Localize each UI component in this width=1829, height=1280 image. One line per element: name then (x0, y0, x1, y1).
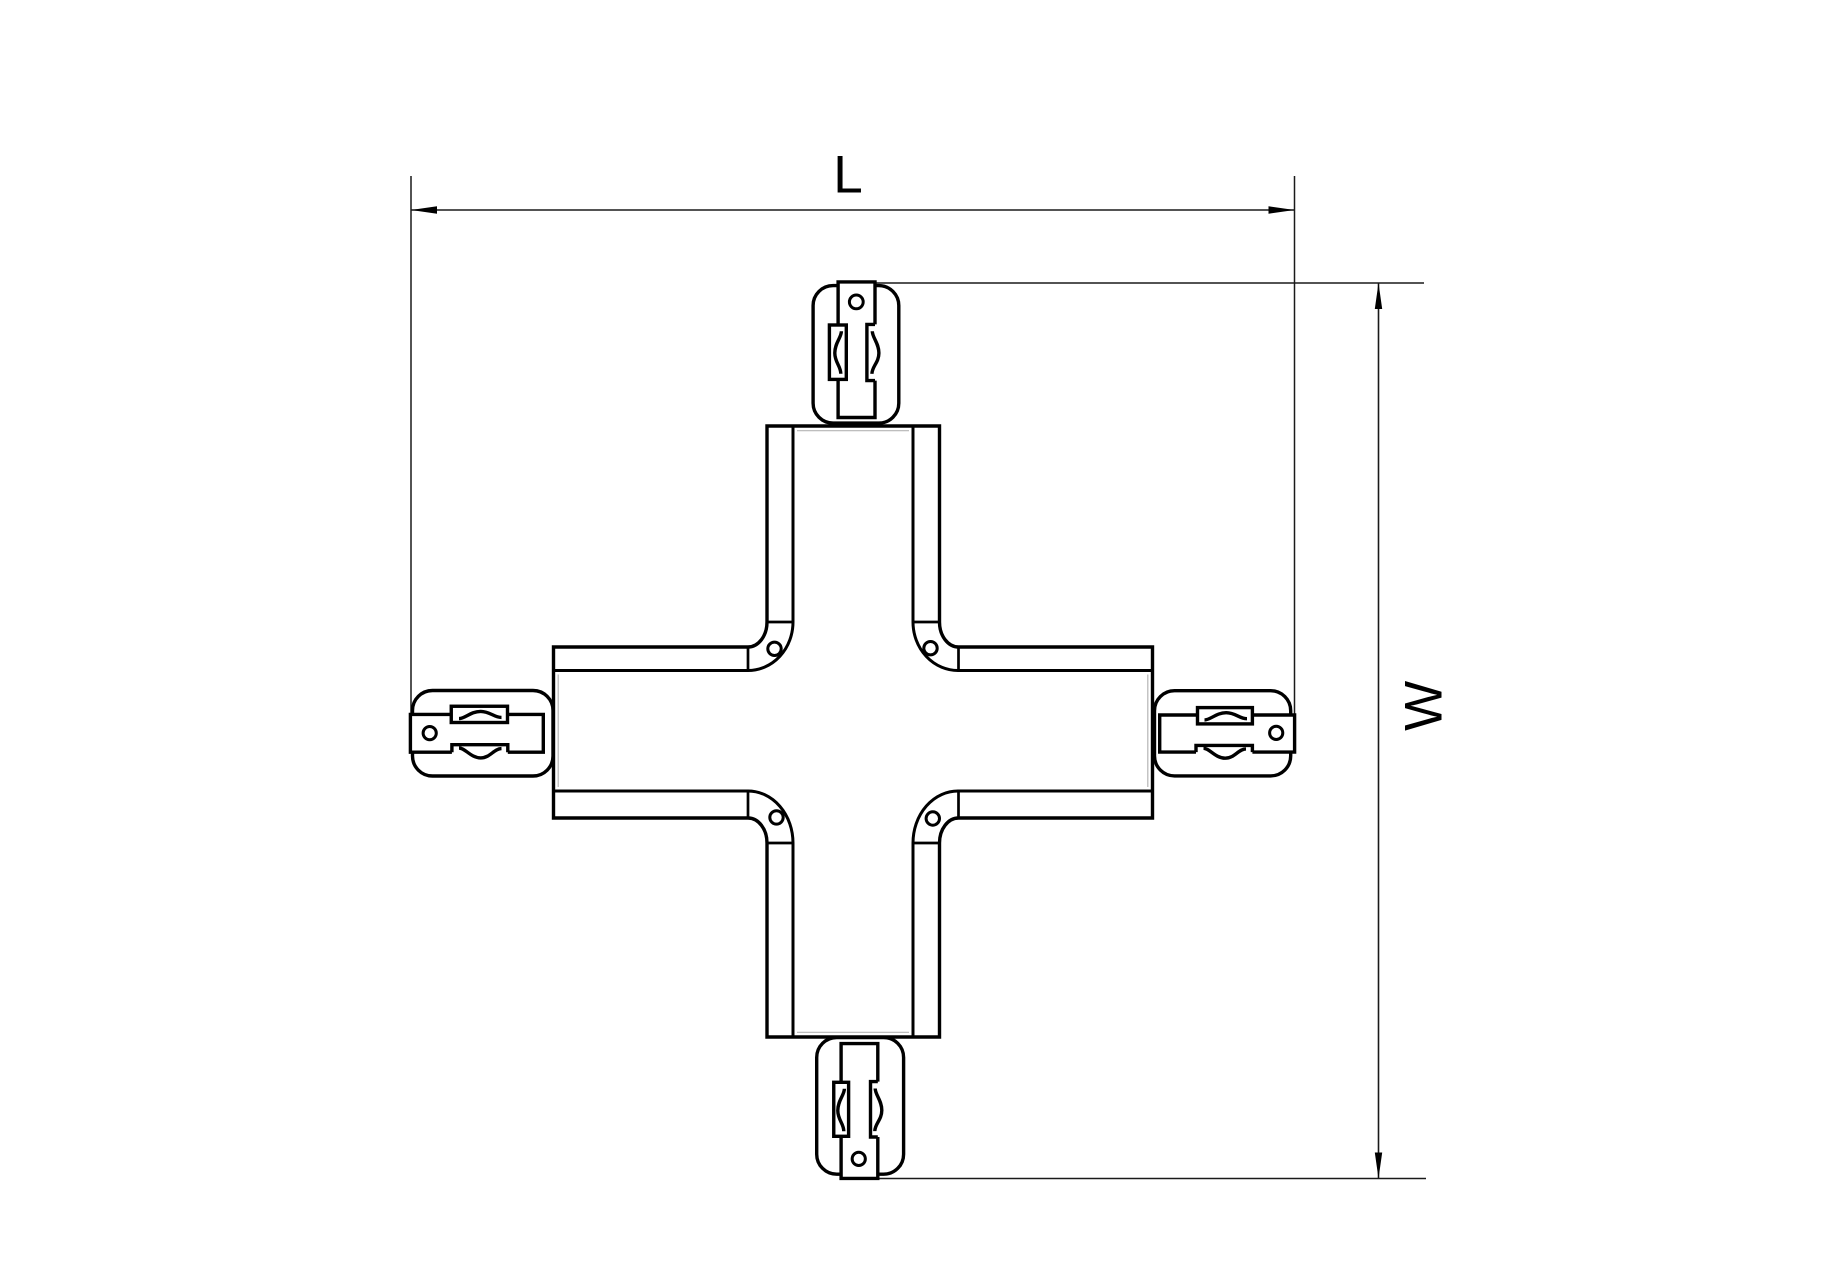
svg-text:W: W (1395, 681, 1454, 731)
svg-text:L: L (833, 146, 862, 205)
